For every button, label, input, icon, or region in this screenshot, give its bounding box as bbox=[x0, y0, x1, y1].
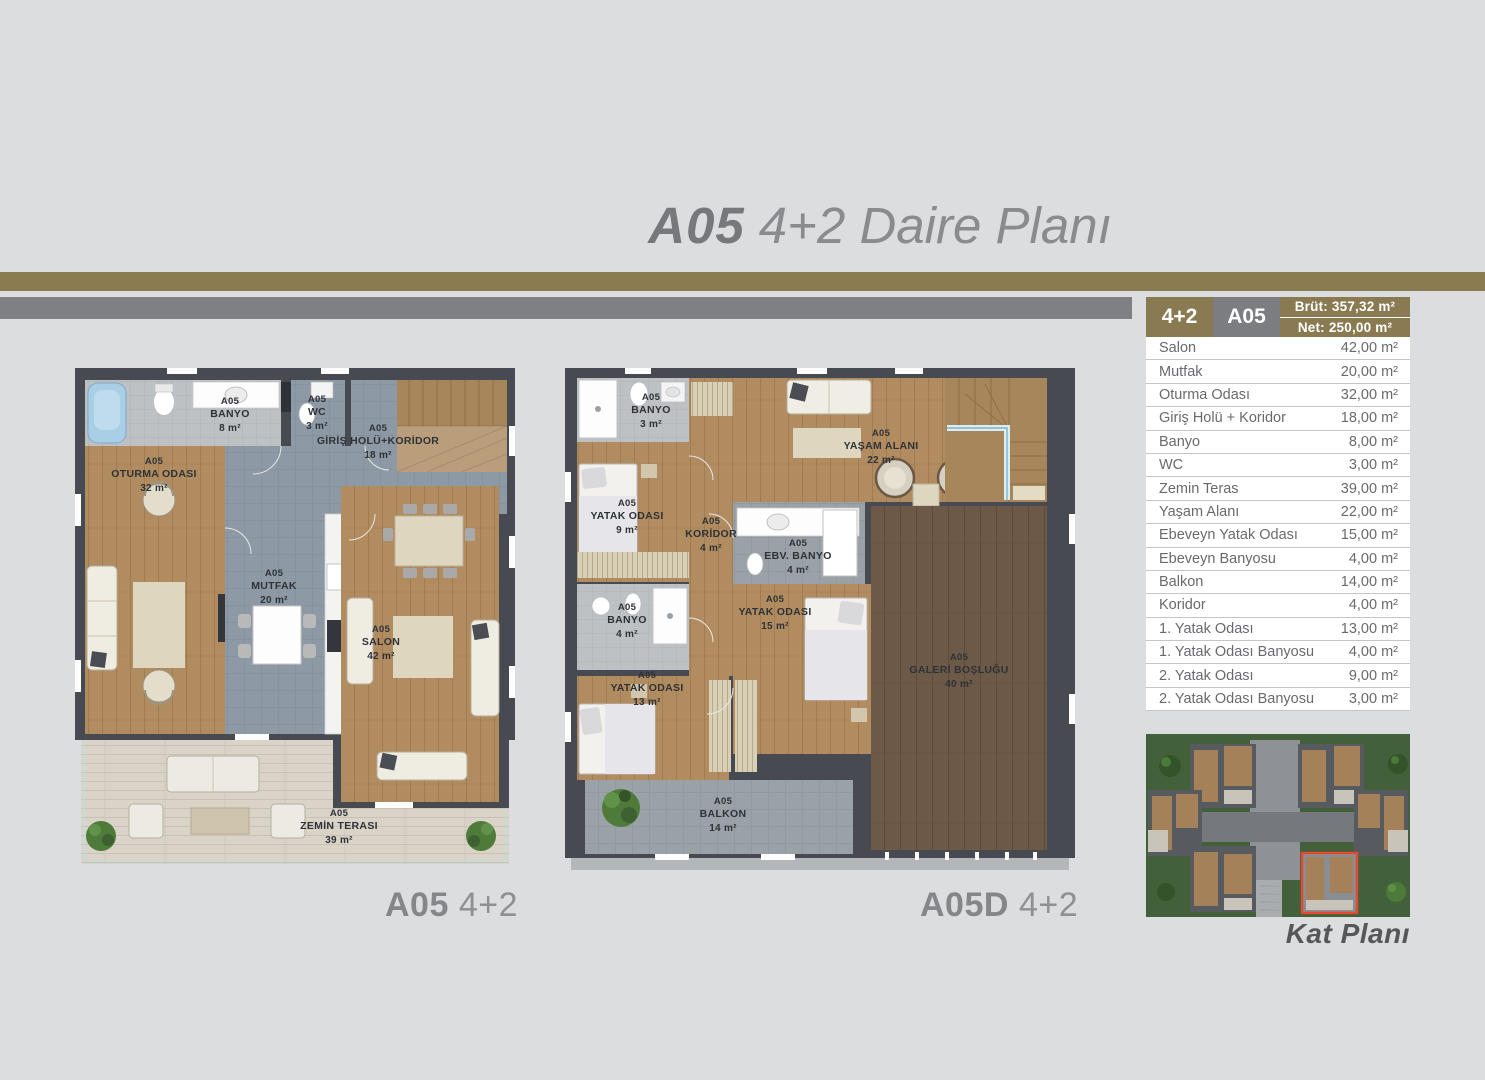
room-label: A05BANYO8 m² bbox=[210, 396, 249, 435]
table-row: 1. Yatak Odası 13,00 m² bbox=[1146, 618, 1410, 641]
room-area: 8,00 m² bbox=[1349, 434, 1410, 450]
table-row: Salon 42,00 m² bbox=[1146, 337, 1410, 360]
room-label: A05KORİDOR4 m² bbox=[685, 516, 737, 555]
room-name: Zemin Teras bbox=[1146, 481, 1341, 497]
floor-plan-a05d: A05BANYO3 m²A05YATAK ODASI9 m²A05KORİDOR… bbox=[565, 368, 1075, 870]
page-title-text: 4+2 Daire Planı bbox=[759, 197, 1112, 254]
table-row: 2. Yatak Odası 9,00 m² bbox=[1146, 664, 1410, 687]
room-name: Salon bbox=[1146, 340, 1341, 356]
plan-caption-type: 4+2 bbox=[1019, 886, 1078, 924]
table-row: Koridor 4,00 m² bbox=[1146, 594, 1410, 617]
table-row: 1. Yatak Odası Banyosu 4,00 m² bbox=[1146, 641, 1410, 664]
room-name: Banyo bbox=[1146, 434, 1349, 450]
room-name: Giriş Holü + Koridor bbox=[1146, 410, 1341, 426]
room-label: A05YATAK ODASI15 m² bbox=[738, 594, 811, 633]
table-row: Yaşam Alanı 22,00 m² bbox=[1146, 501, 1410, 524]
table-row: Oturma Odası 32,00 m² bbox=[1146, 384, 1410, 407]
room-label: A05YATAK ODASI13 m² bbox=[610, 670, 683, 709]
room-area: 4,00 m² bbox=[1349, 597, 1410, 613]
floor-plan-a05: A05BANYO8 m²A05WC3 m²A05GİRİŞ HOLÜ+KORİD… bbox=[75, 368, 515, 870]
room-area: 13,00 m² bbox=[1341, 621, 1410, 637]
room-area: 20,00 m² bbox=[1341, 364, 1410, 380]
unit-summary-table: 4+2 A05 Brüt: 357,32 m² Net: 250,00 m² S… bbox=[1146, 297, 1410, 711]
table-row: Balkon 14,00 m² bbox=[1146, 571, 1410, 594]
room-area: 4,00 m² bbox=[1349, 644, 1410, 660]
room-label: A05EBV. BANYO4 m² bbox=[764, 538, 831, 577]
room-name: Balkon bbox=[1146, 574, 1341, 590]
room-name: Yaşam Alanı bbox=[1146, 504, 1341, 520]
plan-caption-a05: A054+2 bbox=[385, 886, 518, 925]
room-area: 18,00 m² bbox=[1341, 410, 1410, 426]
room-name: 2. Yatak Odası Banyosu bbox=[1146, 691, 1349, 707]
summary-rows: Salon 42,00 m² Mutfak 20,00 m² Oturma Od… bbox=[1146, 337, 1410, 711]
site-plan-drawing bbox=[1146, 734, 1410, 917]
room-name: WC bbox=[1146, 457, 1349, 473]
room-area: 3,00 m² bbox=[1349, 691, 1410, 707]
room-area: 42,00 m² bbox=[1341, 340, 1410, 356]
table-row: Zemin Teras 39,00 m² bbox=[1146, 477, 1410, 500]
room-label: A05GALERİ BOŞLUĞU40 m² bbox=[909, 652, 1008, 691]
room-label: A05ZEMİN TERASI39 m² bbox=[300, 808, 378, 847]
room-area: 22,00 m² bbox=[1341, 504, 1410, 520]
gross-area: Brüt: 357,32 m² bbox=[1280, 297, 1410, 318]
room-area: 15,00 m² bbox=[1341, 527, 1410, 543]
net-area: Net: 250,00 m² bbox=[1280, 318, 1410, 338]
plan-caption-a05d: A05D4+2 bbox=[920, 886, 1078, 925]
room-name: Oturma Odası bbox=[1146, 387, 1341, 403]
room-area: 3,00 m² bbox=[1349, 457, 1410, 473]
room-label: A05MUTFAK20 m² bbox=[251, 568, 297, 607]
room-label: A05YATAK ODASI9 m² bbox=[590, 498, 663, 537]
room-name: 2. Yatak Odası bbox=[1146, 668, 1349, 684]
room-name: Ebeveyn Yatak Odası bbox=[1146, 527, 1341, 543]
plan-labels-1: A05BANYO3 m²A05YATAK ODASI9 m²A05KORİDOR… bbox=[565, 368, 1075, 870]
table-row: Ebeveyn Banyosu 4,00 m² bbox=[1146, 548, 1410, 571]
area-totals: Brüt: 357,32 m² Net: 250,00 m² bbox=[1280, 297, 1410, 337]
room-name: Ebeveyn Banyosu bbox=[1146, 551, 1349, 567]
room-label: A05OTURMA ODASI32 m² bbox=[111, 456, 196, 495]
room-area: 4,00 m² bbox=[1349, 551, 1410, 567]
unit-code-badge: A05 bbox=[1213, 297, 1280, 337]
room-name: Mutfak bbox=[1146, 364, 1341, 380]
room-label: A05YAŞAM ALANI22 m² bbox=[844, 428, 919, 467]
page-title-code: A05 bbox=[648, 197, 745, 254]
room-name: Koridor bbox=[1146, 597, 1349, 613]
table-row: Ebeveyn Yatak Odası 15,00 m² bbox=[1146, 524, 1410, 547]
table-row: WC 3,00 m² bbox=[1146, 454, 1410, 477]
site-plan-thumbnail bbox=[1146, 734, 1410, 917]
table-row: Mutfak 20,00 m² bbox=[1146, 360, 1410, 383]
room-label: A05BANYO4 m² bbox=[607, 602, 646, 641]
room-area: 32,00 m² bbox=[1341, 387, 1410, 403]
table-row: 2. Yatak Odası Banyosu 3,00 m² bbox=[1146, 688, 1410, 711]
room-area: 9,00 m² bbox=[1349, 668, 1410, 684]
table-row: Banyo 8,00 m² bbox=[1146, 431, 1410, 454]
plan-caption-code: A05D bbox=[920, 886, 1009, 924]
room-label: A05GİRİŞ HOLÜ+KORİDOR18 m² bbox=[317, 423, 439, 462]
room-name: 1. Yatak Odası Banyosu bbox=[1146, 644, 1349, 660]
room-label: A05BANYO3 m² bbox=[631, 392, 670, 431]
room-label: A05BALKON14 m² bbox=[700, 796, 747, 835]
table-row: Giriş Holü + Koridor 18,00 m² bbox=[1146, 407, 1410, 430]
page: A054+2 Daire Planı bbox=[0, 0, 1485, 1080]
plan-caption-code: A05 bbox=[385, 886, 449, 924]
plan-caption-type: 4+2 bbox=[459, 886, 518, 924]
site-plan-caption: Kat Planı bbox=[1146, 918, 1410, 950]
room-area: 39,00 m² bbox=[1341, 481, 1410, 497]
gold-divider-bar bbox=[0, 272, 1485, 291]
plan-labels-0: A05BANYO8 m²A05WC3 m²A05GİRİŞ HOLÜ+KORİD… bbox=[75, 368, 515, 870]
gray-divider-bar bbox=[0, 297, 1132, 319]
summary-header: 4+2 A05 Brüt: 357,32 m² Net: 250,00 m² bbox=[1146, 297, 1410, 337]
room-area: 14,00 m² bbox=[1341, 574, 1410, 590]
highlighted-unit bbox=[1302, 853, 1357, 913]
unit-type-badge: 4+2 bbox=[1146, 297, 1213, 337]
room-label: A05SALON42 m² bbox=[362, 624, 400, 663]
page-title: A054+2 Daire Planı bbox=[520, 196, 1240, 256]
room-name: 1. Yatak Odası bbox=[1146, 621, 1341, 637]
